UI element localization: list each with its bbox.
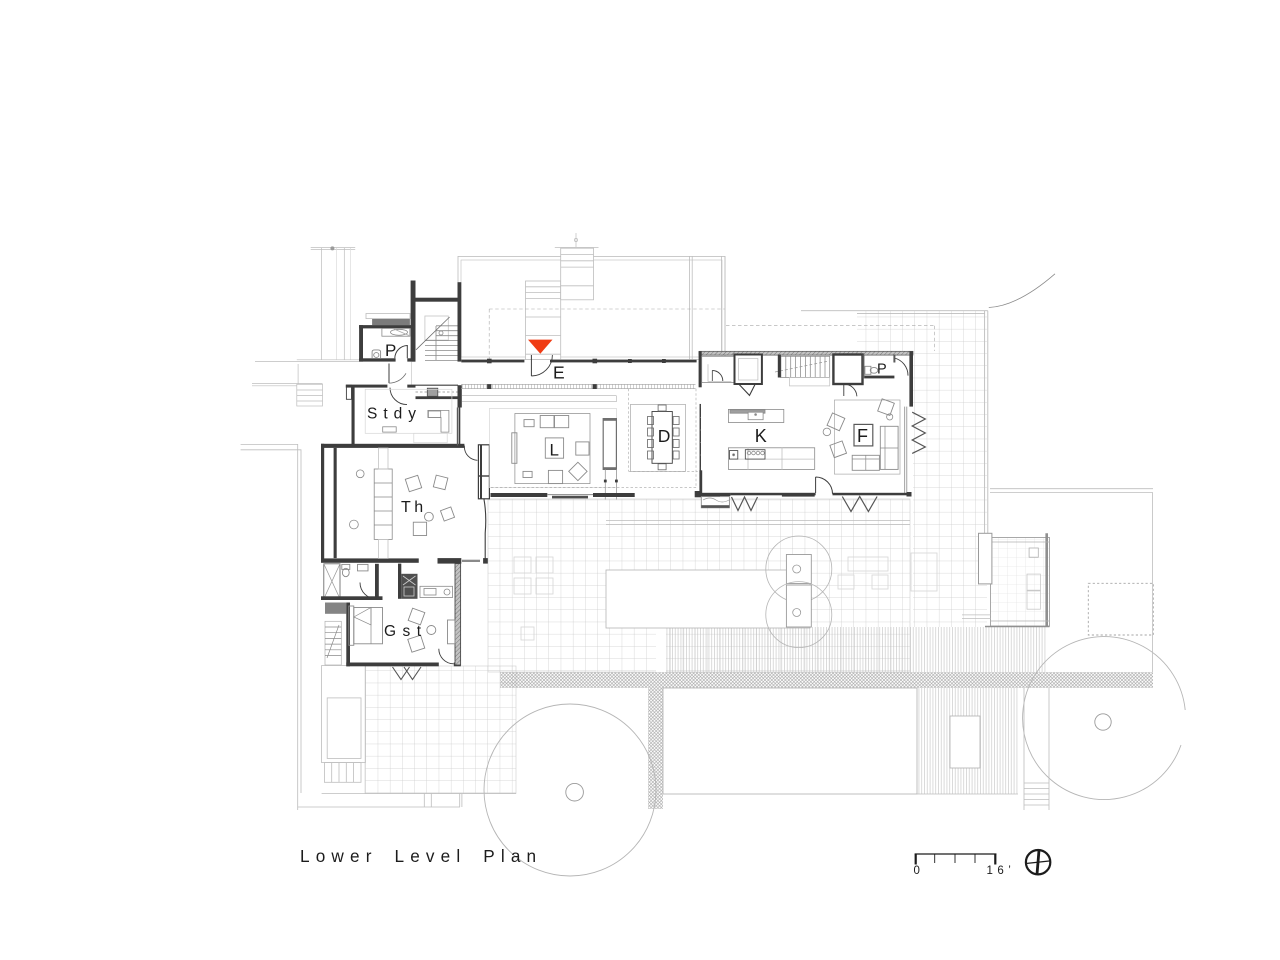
svg-text:E: E <box>553 363 565 383</box>
svg-text:L: L <box>550 441 559 460</box>
svg-text:0: 0 <box>914 865 920 877</box>
svg-text:P: P <box>877 362 887 378</box>
svg-text:Gst: Gst <box>384 623 428 640</box>
svg-text:P: P <box>385 341 396 360</box>
svg-text:Stdy: Stdy <box>367 406 422 423</box>
svg-text:Lower Level Plan: Lower Level Plan <box>300 846 542 866</box>
svg-text:K: K <box>755 426 767 446</box>
svg-text:D: D <box>658 426 671 446</box>
svg-text:F: F <box>857 426 868 446</box>
svg-text:16’: 16’ <box>987 865 1016 877</box>
svg-text:Th: Th <box>401 499 427 516</box>
